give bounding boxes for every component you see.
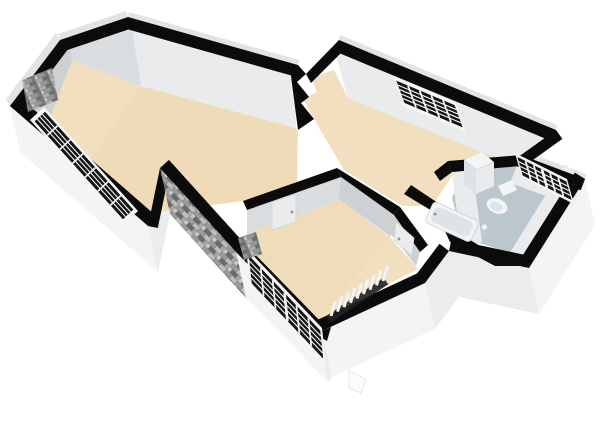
floorplan-stage [0, 0, 600, 424]
door-handle-living-bedroom [291, 211, 294, 214]
door-handle-bedroom-hall [398, 238, 401, 241]
toilet-brush [482, 224, 488, 230]
floorplan-3d-render [0, 0, 600, 424]
